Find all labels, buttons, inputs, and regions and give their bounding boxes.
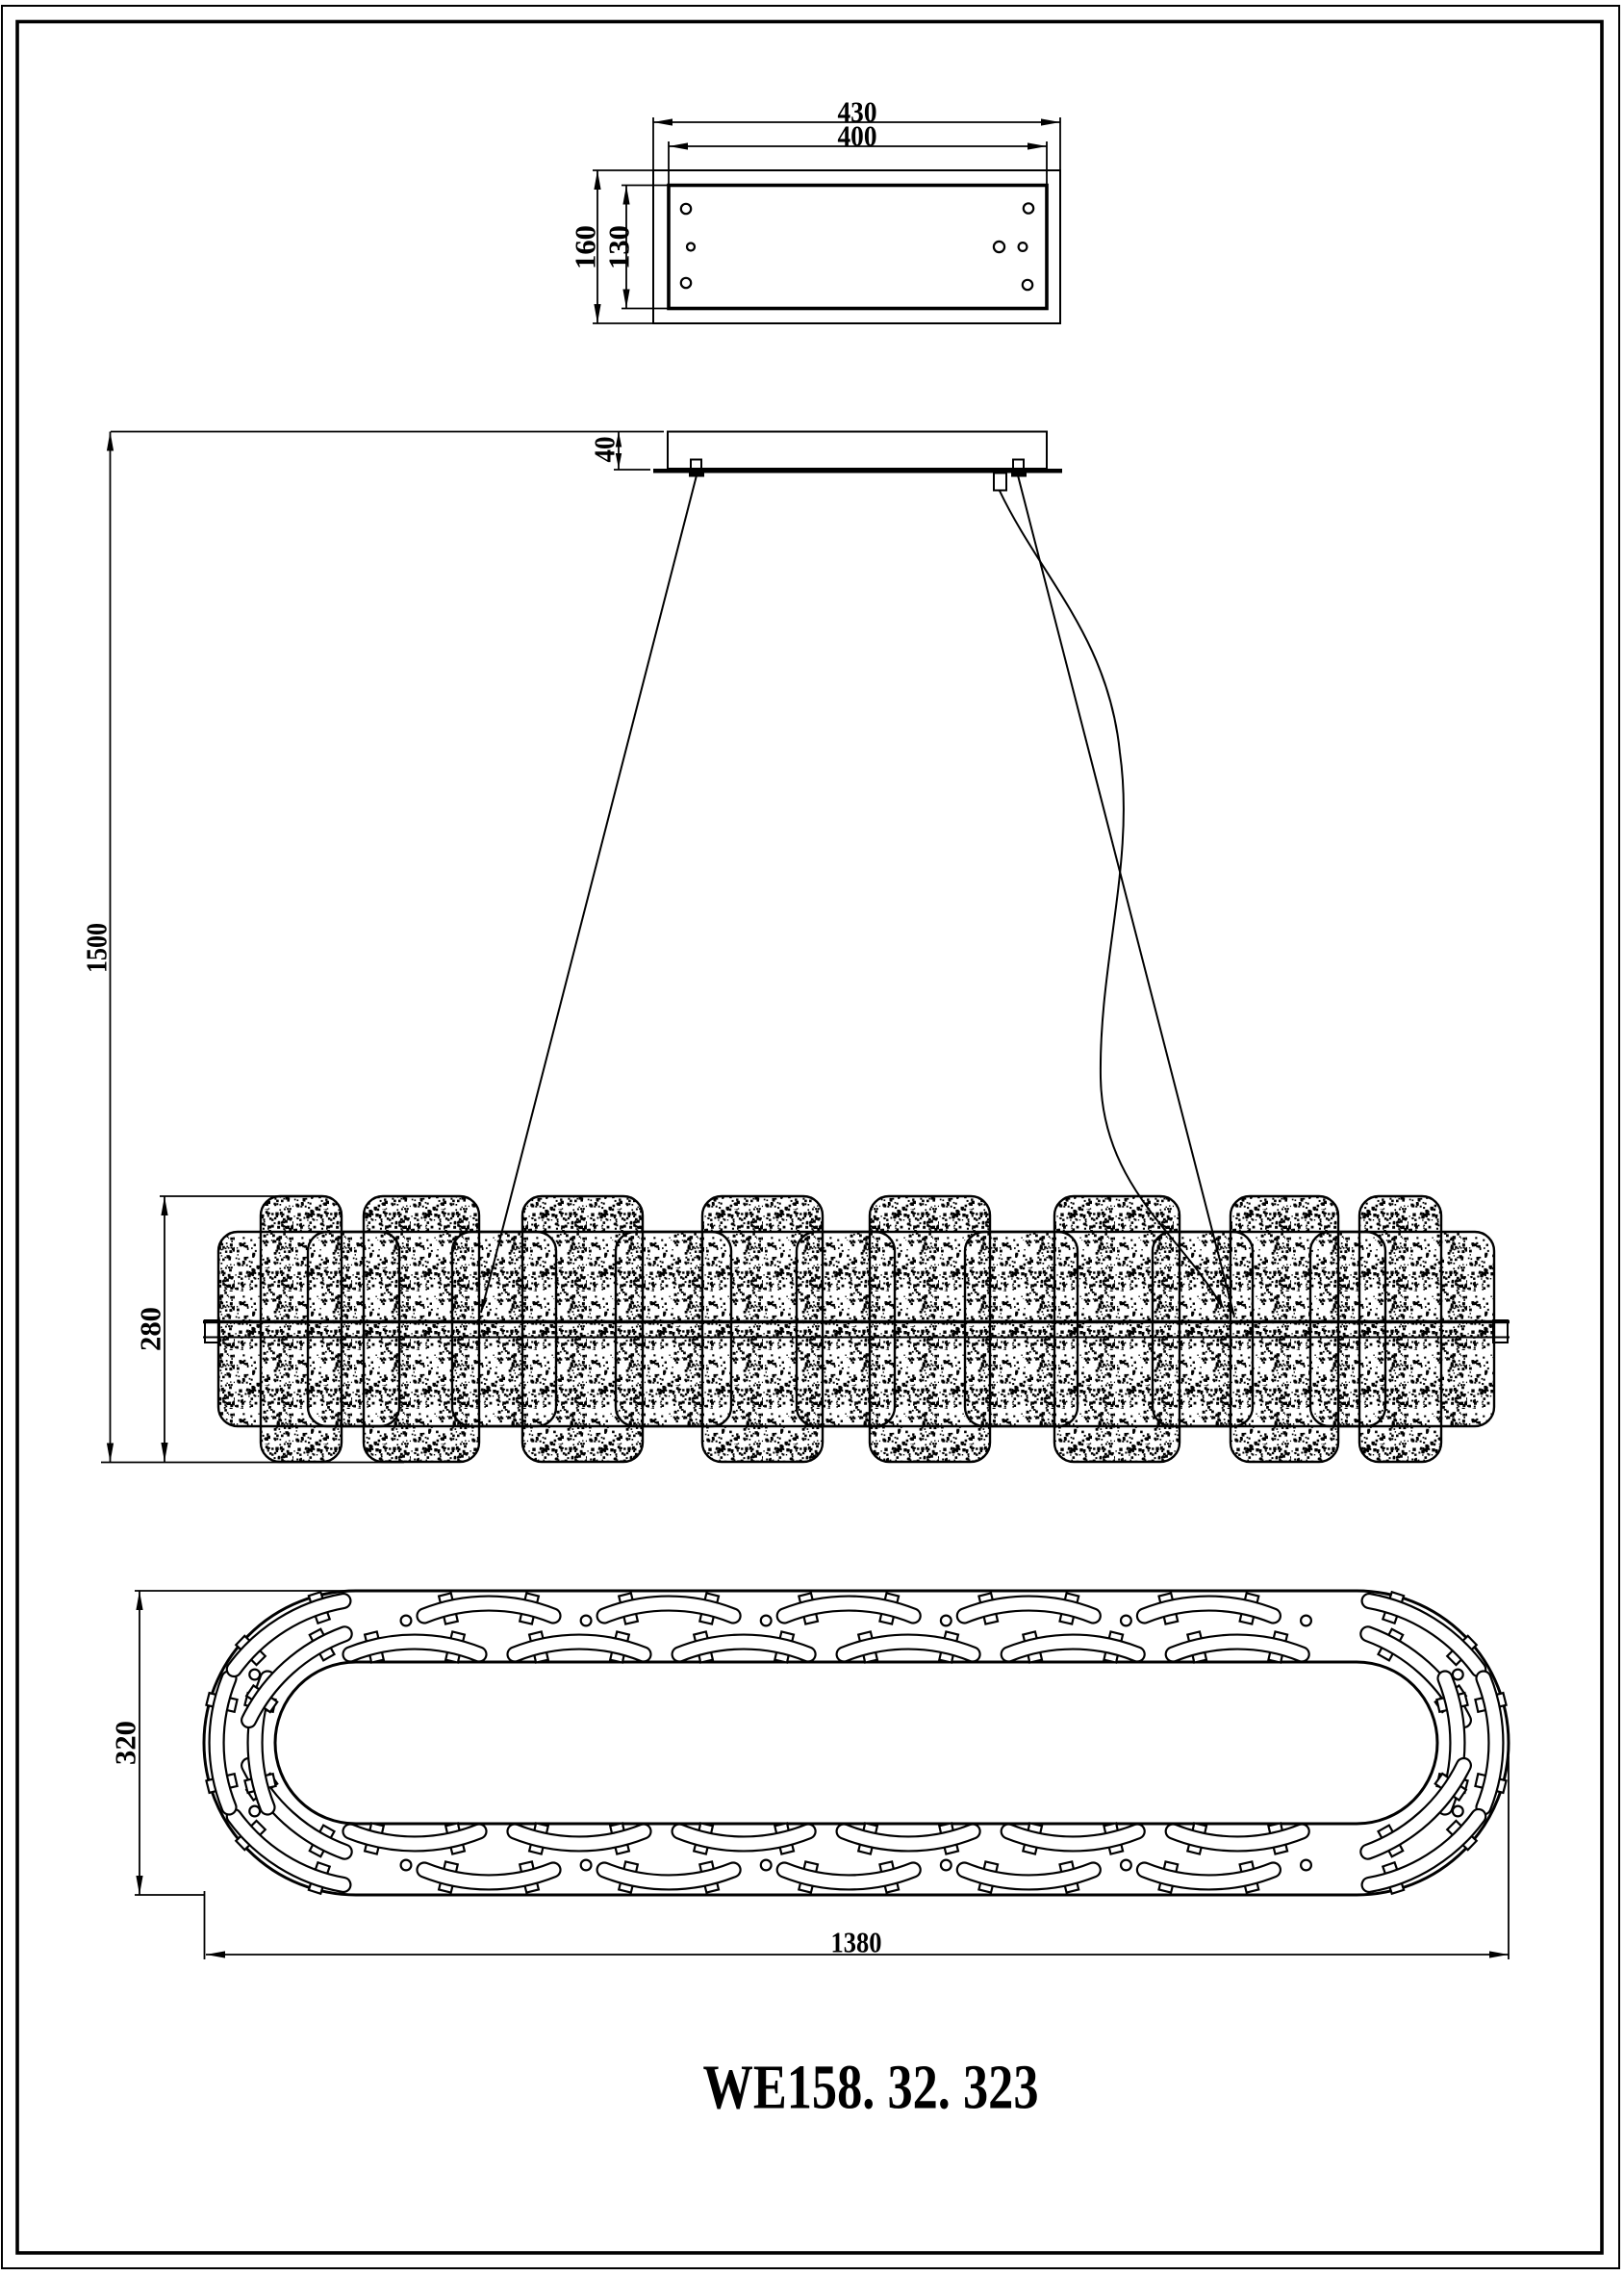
svg-text:WE158. 32. 323: WE158. 32. 323	[703, 2053, 1039, 2123]
svg-text:40: 40	[588, 437, 622, 463]
svg-text:1380: 1380	[831, 1926, 882, 1959]
svg-text:1500: 1500	[80, 923, 114, 973]
svg-text:400: 400	[838, 119, 877, 153]
svg-text:320: 320	[109, 1721, 142, 1765]
svg-text:130: 130	[602, 225, 636, 269]
svg-text:160: 160	[569, 225, 602, 269]
svg-text:280: 280	[134, 1307, 167, 1351]
